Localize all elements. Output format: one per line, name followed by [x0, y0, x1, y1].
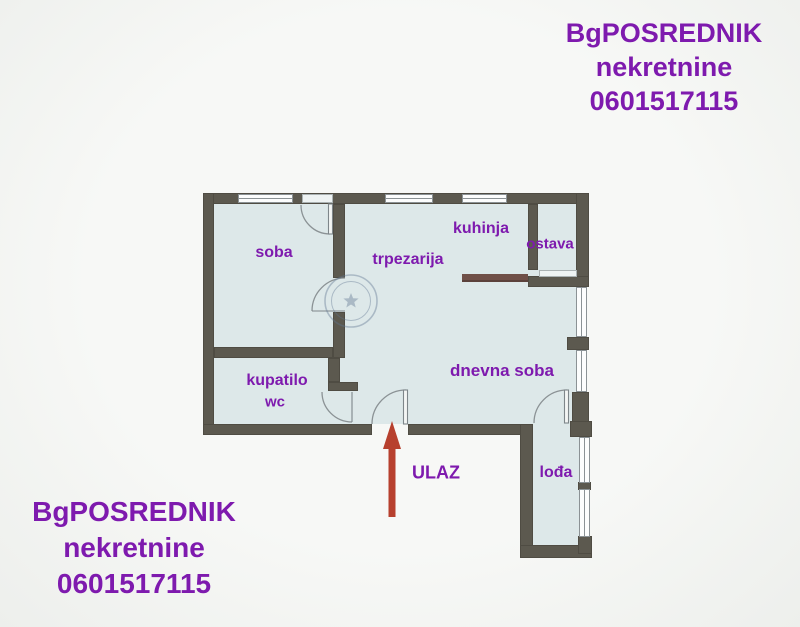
window-kuhinja [462, 194, 507, 203]
room-label-wc: wc [265, 394, 285, 411]
wall-kupatilo-stub [328, 382, 358, 391]
wall-kupatilo-right [328, 358, 340, 382]
wall-bottom-left [203, 424, 372, 435]
window-soba [238, 194, 293, 203]
kitchen-counter [462, 274, 528, 282]
lodja-floor [533, 435, 580, 545]
room-label-soba: soba [255, 244, 292, 262]
floor-plan-page: BgPOSREDNIK nekretnine 0601517115 BgPOSR… [0, 0, 800, 627]
window-lodja-lower [579, 489, 590, 537]
window-dnevna-lower [576, 350, 587, 392]
room-label-kupatilo: kupatilo [246, 372, 307, 390]
room-label-trpezarija: trpezarija [372, 251, 443, 269]
apartment-floor [214, 204, 576, 424]
wall-kupatilo-top [214, 347, 333, 358]
window-dnevna-upper [576, 287, 587, 337]
agency-name: BgPOSREDNIK [8, 494, 260, 530]
wall-ostava-bottom [528, 276, 589, 287]
wall-soba-divider-upper [333, 204, 345, 278]
agency-phone: 0601517115 [524, 84, 800, 118]
room-label-dnevna-soba: dnevna soba [450, 361, 554, 381]
window-trpezarija [385, 194, 433, 203]
ostava-threshold [539, 270, 577, 277]
agency-watermark-top: BgPOSREDNIK nekretnine 0601517115 [524, 16, 800, 118]
room-label-kuhinja: kuhinja [453, 220, 509, 238]
lodja-door-gap-floor [533, 424, 570, 435]
agency-watermark-bottom: BgPOSREDNIK nekretnine 0601517115 [8, 494, 260, 602]
agency-name: BgPOSREDNIK [524, 16, 800, 50]
wall-right-top [576, 193, 589, 287]
wall-lodja-left [520, 424, 533, 558]
agency-phone: 0601517115 [8, 566, 260, 602]
wall-right-mullion [567, 337, 589, 350]
room-label-lodja: lođa [540, 464, 573, 482]
wall-soba-divider-lower [333, 312, 345, 358]
entrance-label: ULAZ [412, 463, 460, 484]
wall-bottom-right [408, 424, 533, 435]
entrance-arrow-icon [383, 421, 401, 517]
room-label-ostava: ostava [526, 236, 574, 253]
wall-right-pier [572, 392, 589, 423]
balcony-door-opening [302, 194, 333, 203]
wall-lodja-door-pier [570, 421, 592, 437]
agency-subtitle: nekretnine [524, 50, 800, 84]
wall-lodja-right-corner [578, 536, 592, 554]
window-lodja-upper [579, 437, 590, 483]
wall-left [203, 193, 214, 435]
agency-subtitle: nekretnine [8, 530, 260, 566]
